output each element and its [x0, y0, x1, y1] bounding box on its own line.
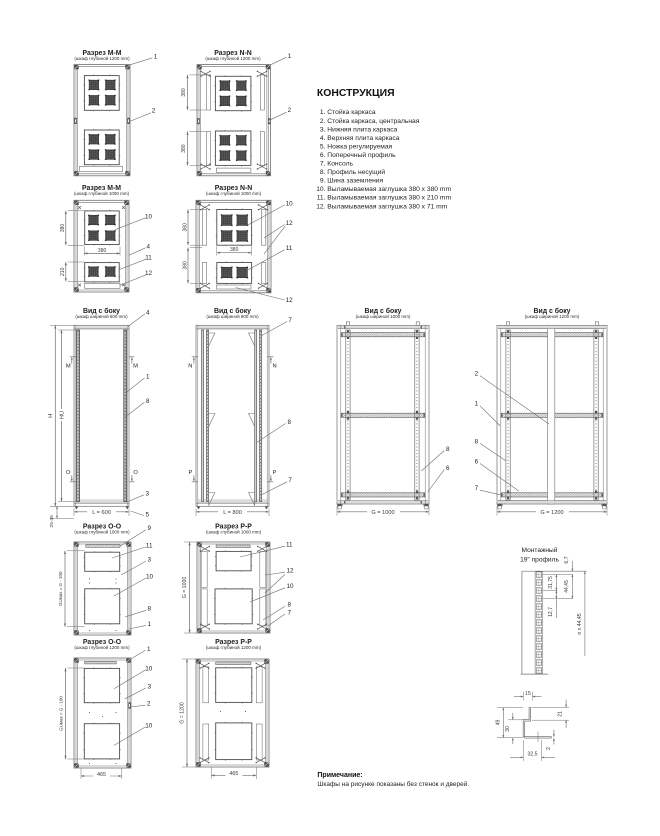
svg-text:n x 44,45: n x 44,45	[577, 613, 583, 634]
svg-text:31,75: 31,75	[548, 576, 554, 589]
svg-text:11: 11	[286, 542, 293, 549]
svg-text:7: 7	[288, 609, 292, 616]
svg-text:N: N	[188, 363, 192, 369]
svg-text:8.: 8.	[320, 169, 326, 176]
svg-text:11.: 11.	[317, 195, 326, 202]
svg-text:12: 12	[286, 568, 294, 575]
svg-text:1: 1	[147, 646, 151, 653]
svg-text:2: 2	[546, 747, 552, 750]
svg-text:G = 1200: G = 1200	[180, 702, 186, 724]
svg-text:11: 11	[286, 245, 293, 252]
svg-text:Профиль несущий: Профиль несущий	[327, 168, 385, 176]
svg-text:12: 12	[286, 220, 294, 227]
svg-text:Поперечный профиль: Поперечный профиль	[327, 151, 396, 159]
svg-text:380: 380	[182, 261, 188, 270]
svg-text:Примечание:: Примечание:	[317, 772, 362, 779]
svg-text:O: O	[133, 470, 138, 476]
svg-text:Монтажный: Монтажный	[522, 546, 558, 554]
svg-text:12.: 12.	[316, 203, 325, 210]
svg-text:12: 12	[286, 297, 294, 304]
svg-text:15: 15	[525, 691, 531, 697]
svg-text:6: 6	[475, 459, 479, 466]
svg-text:4: 4	[146, 243, 150, 250]
svg-text:4: 4	[146, 309, 150, 316]
svg-text:Выламываемая заглушка 380 x 21: Выламываемая заглушка 380 x 210 mm	[327, 195, 451, 202]
svg-text:G = 1000: G = 1000	[371, 510, 394, 516]
svg-text:(шкаф глубиной 1200 mm): (шкаф глубиной 1200 mm)	[205, 55, 261, 61]
svg-text:L = 800: L = 800	[223, 510, 242, 516]
svg-text:2: 2	[152, 108, 156, 115]
svg-text:8: 8	[475, 438, 479, 445]
svg-text:Шкафы на рисунке показаны без: Шкафы на рисунке показаны без стенок и д…	[317, 780, 469, 788]
svg-text:11: 11	[145, 255, 152, 262]
svg-text:6: 6	[446, 465, 450, 472]
svg-text:49: 49	[495, 720, 501, 726]
svg-text:H: H	[48, 414, 54, 418]
svg-text:7: 7	[475, 485, 479, 492]
svg-text:8: 8	[288, 602, 292, 609]
svg-text:8: 8	[446, 446, 450, 453]
svg-text:9: 9	[147, 525, 151, 532]
svg-text:210: 210	[60, 267, 66, 276]
svg-text:10: 10	[145, 722, 153, 729]
svg-text:Шина заземления: Шина заземления	[327, 178, 383, 185]
svg-text:10: 10	[145, 665, 153, 672]
svg-text:GUмах = G - 100: GUмах = G - 100	[59, 696, 64, 731]
svg-text:10: 10	[286, 583, 294, 590]
svg-text:Стойка каркаса: Стойка каркаса	[327, 108, 376, 116]
svg-text:Выламываемая заглушка 380 x 38: Выламываемая заглушка 380 x 380 mm	[327, 186, 451, 193]
svg-text:(шкаф глубиной 1000 mm): (шкаф глубиной 1000 mm)	[206, 190, 262, 196]
svg-text:10: 10	[286, 201, 294, 208]
svg-text:44,45: 44,45	[564, 580, 570, 593]
svg-text:380: 380	[230, 247, 239, 253]
svg-text:2: 2	[147, 701, 151, 708]
svg-text:(шкаф шириной 1200 mm): (шкаф шириной 1200 mm)	[525, 313, 580, 319]
svg-text:21: 21	[558, 711, 564, 717]
svg-text:3: 3	[148, 683, 152, 690]
svg-text:1: 1	[146, 373, 150, 380]
svg-text:P: P	[273, 470, 277, 476]
svg-text:380: 380	[181, 144, 187, 153]
svg-text:12,7: 12,7	[548, 607, 554, 617]
svg-text:M: M	[66, 363, 71, 369]
svg-text:6.: 6.	[320, 152, 326, 159]
svg-text:HU: HU	[59, 411, 65, 419]
svg-text:3: 3	[145, 490, 149, 497]
svg-text:6,7: 6,7	[564, 556, 570, 563]
svg-text:1: 1	[154, 54, 158, 61]
svg-text:(шкаф глубиной 1200 mm): (шкаф глубиной 1200 mm)	[74, 55, 130, 61]
svg-text:O: O	[66, 470, 71, 476]
svg-text:465: 465	[97, 772, 106, 778]
svg-text:1: 1	[147, 621, 151, 628]
svg-text:N: N	[273, 363, 277, 369]
svg-text:5.: 5.	[320, 143, 326, 150]
svg-text:8: 8	[147, 606, 151, 613]
svg-text:3.: 3.	[320, 126, 326, 133]
svg-text:(шкаф глубиной 1200 mm): (шкаф глубиной 1200 mm)	[206, 644, 262, 650]
svg-text:G = 1000: G = 1000	[182, 577, 188, 599]
svg-text:(шкаф глубиной 1000 mm): (шкаф глубиной 1000 mm)	[206, 529, 262, 535]
svg-text:11: 11	[146, 542, 153, 549]
svg-text:380: 380	[182, 223, 188, 232]
svg-text:380: 380	[98, 248, 107, 254]
svg-text:(шкаф шириной 1000 mm): (шкаф шириной 1000 mm)	[356, 313, 411, 319]
svg-text:L = 600: L = 600	[92, 510, 111, 516]
svg-text:1: 1	[475, 400, 479, 407]
svg-text:2: 2	[475, 370, 479, 377]
svg-text:Консоль: Консоль	[327, 161, 353, 168]
svg-text:30: 30	[505, 726, 511, 732]
svg-text:P: P	[188, 470, 192, 476]
svg-text:M: M	[133, 363, 138, 369]
svg-text:G = 1200: G = 1200	[540, 510, 563, 516]
svg-text:1: 1	[288, 53, 292, 60]
svg-text:(шкаф глубиной 1200 mm): (шкаф глубиной 1200 mm)	[74, 644, 130, 650]
svg-text:7: 7	[288, 477, 292, 484]
svg-text:10.: 10.	[316, 186, 325, 193]
svg-text:380: 380	[181, 88, 187, 97]
svg-text:КОНСТРУКЦИЯ: КОНСТРУКЦИЯ	[317, 88, 395, 99]
svg-text:1.: 1.	[320, 109, 326, 116]
svg-text:Верхняя плита каркаса: Верхняя плита каркаса	[327, 135, 399, 142]
svg-text:10: 10	[145, 214, 153, 221]
svg-text:10: 10	[146, 573, 154, 580]
svg-text:8: 8	[287, 419, 291, 426]
svg-text:(шкаф шириной 600 mm): (шкаф шириной 600 mm)	[75, 313, 128, 319]
svg-text:(шкаф шириной 800 mm): (шкаф шириной 800 mm)	[206, 313, 259, 319]
svg-text:Стойка каркаса, центральная: Стойка каркаса, центральная	[327, 117, 419, 125]
svg-text:32,5: 32,5	[527, 751, 537, 757]
svg-text:9.: 9.	[320, 178, 326, 185]
svg-text:380: 380	[60, 224, 66, 233]
svg-text:(шкаф глубиной 1000 mm): (шкаф глубиной 1000 mm)	[74, 190, 130, 196]
svg-text:GUмах = G - 100: GUмах = G - 100	[58, 571, 63, 606]
svg-text:465: 465	[229, 771, 238, 777]
svg-text:3: 3	[147, 557, 151, 564]
svg-text:7: 7	[288, 317, 292, 324]
svg-text:2: 2	[288, 107, 292, 114]
svg-text:Выламываемая заглушка 380 x 71: Выламываемая заглушка 380 x 71 mm	[327, 203, 447, 210]
svg-text:25-35: 25-35	[49, 515, 55, 528]
svg-text:12: 12	[145, 270, 153, 277]
svg-text:19" профиль: 19" профиль	[520, 557, 559, 564]
svg-text:8: 8	[146, 398, 150, 405]
svg-text:Ножка регулируемая: Ножка регулируемая	[327, 143, 392, 150]
svg-text:Нижняя плита каркаса: Нижняя плита каркаса	[327, 126, 397, 133]
svg-text:7.: 7.	[320, 161, 326, 168]
svg-text:5: 5	[145, 511, 149, 518]
svg-text:(шкаф глубиной 1000 mm): (шкаф глубиной 1000 mm)	[74, 529, 130, 535]
svg-text:4.: 4.	[320, 135, 326, 142]
svg-text:2.: 2.	[320, 118, 326, 125]
